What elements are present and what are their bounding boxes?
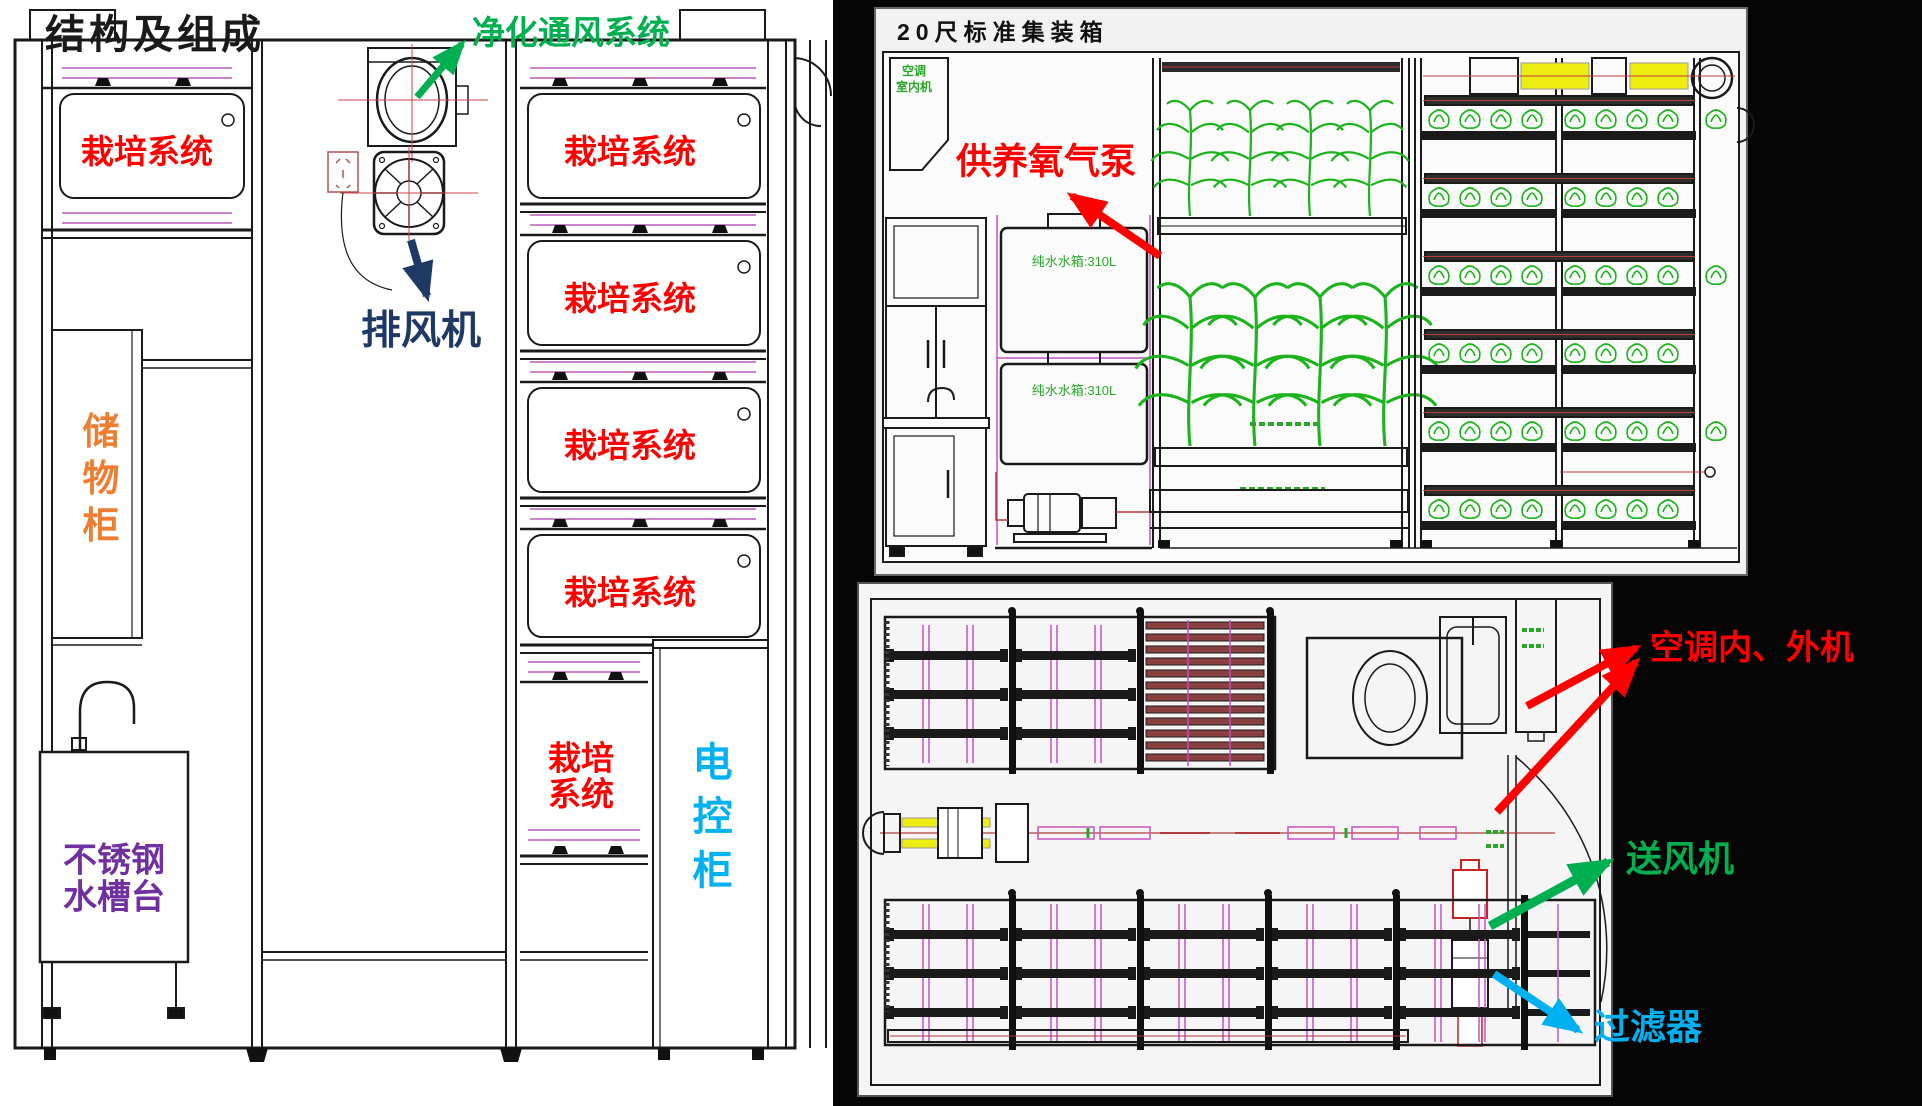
ac-units-label: 空调内、外机 <box>1650 630 1854 667</box>
power-socket-icon <box>328 152 358 192</box>
exhaust-fan-label: 排风机 <box>361 309 481 352</box>
left-panel-title: 结构及组成 <box>45 14 265 57</box>
supply-fan-label: 送风机 <box>1626 840 1734 879</box>
cultivation-label-5: 栽培系统 <box>564 575 696 611</box>
top-right-panel-drawing <box>875 8 1754 575</box>
cultivation-label-2: 栽培系统 <box>564 134 696 170</box>
cultivation-label-1: 栽培系统 <box>81 134 213 170</box>
cultivation-label-4: 栽培系统 <box>564 428 696 464</box>
filter-label: 过滤器 <box>1594 1008 1702 1047</box>
control-cabinet-label: 电控柜 <box>686 741 729 903</box>
ac-indoor-unit-label: 空调 室内机 <box>896 64 932 95</box>
bottom-right-panel-drawing <box>858 583 1636 1096</box>
top-right-panel-title: 20尺标准集装箱 <box>897 20 1109 45</box>
water-tank-label-2: 纯水水箱:310L <box>1032 384 1117 398</box>
water-tank-label-1: 纯水水箱:310L <box>1032 255 1117 269</box>
cultivation-label-stacked: 栽培 系统 <box>548 740 614 811</box>
sink-label: 不锈钢 水槽台 <box>63 842 165 915</box>
storage-cabinet-label: 储物柜 <box>77 412 117 553</box>
purification-vent-label: 净化通风系统 <box>472 15 670 51</box>
cultivation-label-3: 栽培系统 <box>564 281 696 317</box>
screenshot-root: 结构及组成 净化通风系统 栽培系统 栽培系统 栽培系统 栽培系统 栽培系统 栽培… <box>0 0 1922 1106</box>
oxygen-pump-label: 供养氧气泵 <box>956 143 1136 182</box>
